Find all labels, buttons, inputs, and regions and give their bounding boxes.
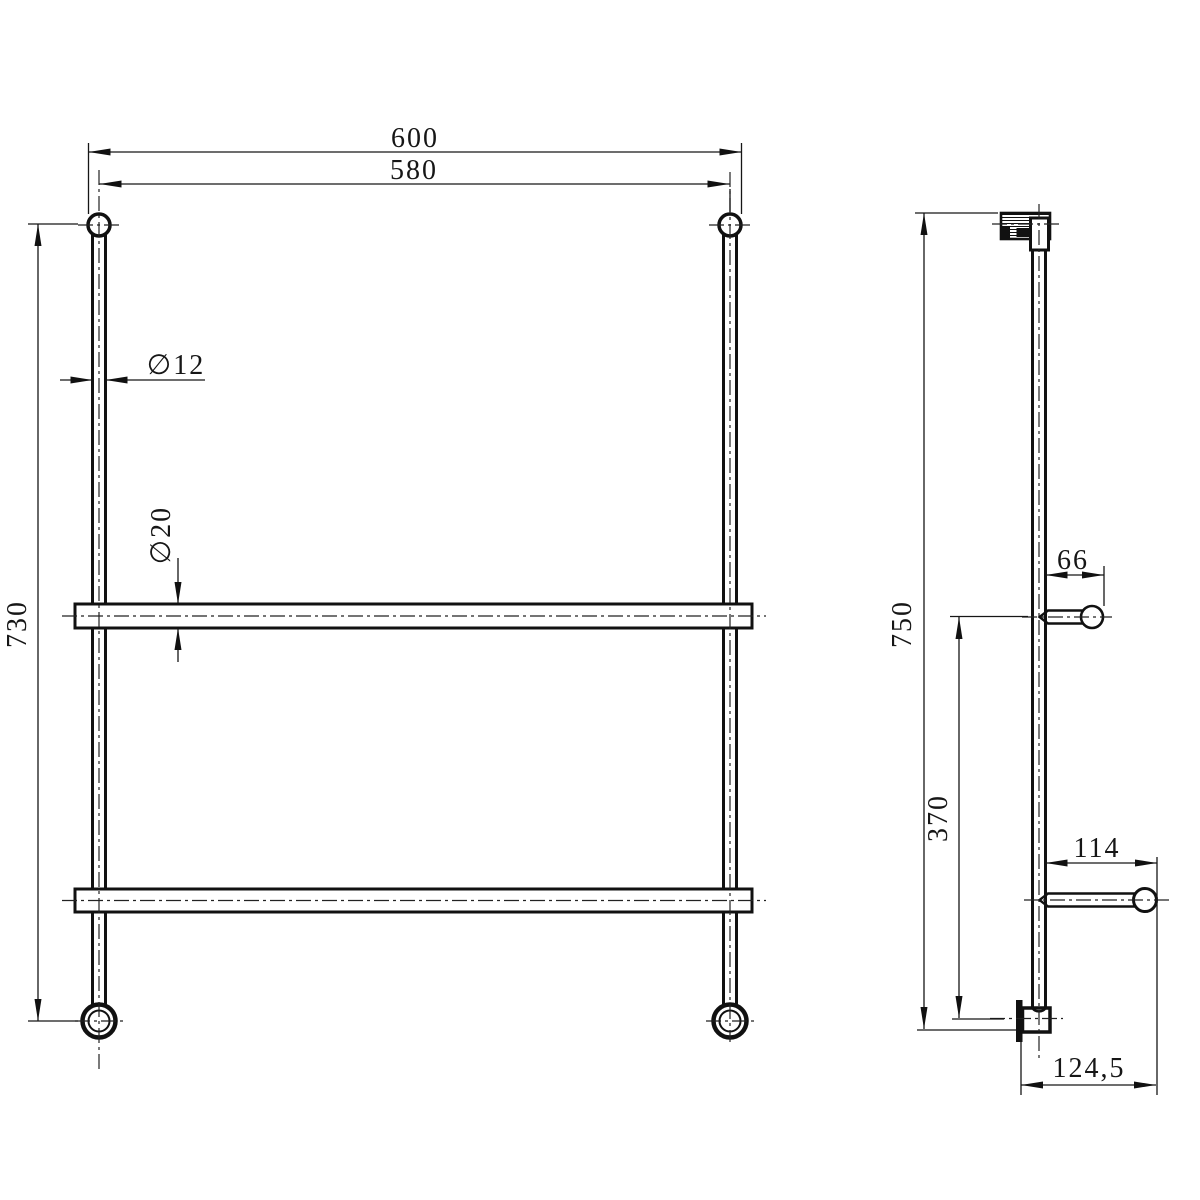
side-view: 750 370 66 114	[887, 204, 1172, 1095]
dim-label-hook-spacing: 370	[923, 794, 954, 842]
dim-bar-diameter: ∅20	[146, 506, 182, 662]
dim-label-front-height: 730	[2, 600, 33, 648]
dim-label-bottom-depth: 124,5	[1053, 1053, 1126, 1084]
dim-label-side-height: 750	[887, 600, 918, 648]
front-view: 600 580 730 ∅12	[2, 123, 766, 1072]
dim-label-bar-diameter: ∅20	[146, 506, 177, 564]
dim-front-height: 730	[2, 224, 78, 1021]
dim-hook-spacing: 370	[923, 617, 1028, 1020]
dim-label-center-width: 580	[390, 155, 438, 186]
technical-drawing: 600 580 730 ∅12	[0, 0, 1200, 1200]
dim-label-overall-width: 600	[391, 123, 439, 154]
dim-label-post-diameter: ∅12	[147, 350, 205, 381]
dim-bottom-depth: 124,5	[1021, 1034, 1156, 1095]
dim-post-diameter: ∅12	[60, 350, 205, 384]
dim-label-lower-hook: 114	[1074, 833, 1121, 864]
drawing-sheet: 600 580 730 ∅12	[0, 0, 1200, 1200]
dim-upper-hook: 66	[1046, 545, 1105, 606]
dim-center-width: 580	[100, 155, 731, 212]
side-centerlines	[990, 204, 1172, 1058]
dim-side-height: 750	[887, 213, 1016, 1030]
dim-label-upper-hook: 66	[1057, 545, 1089, 576]
